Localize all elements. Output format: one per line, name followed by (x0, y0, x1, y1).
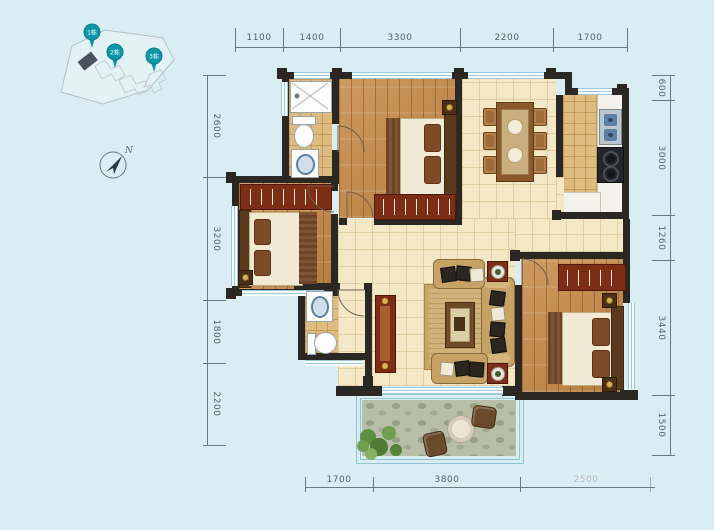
door-arc-master-bedroom (347, 192, 373, 218)
floor-plan-image: 1栋 2栋 3栋 N 1100 1400 3300 2200 1700 2600… (0, 0, 714, 530)
shower-drain-icon (295, 94, 300, 99)
balcony-plants (357, 426, 402, 460)
door-arc-bathroom-1 (338, 126, 364, 152)
shower-glass-lines (292, 83, 328, 109)
door-arcs (308, 126, 548, 316)
plan-overlay (0, 0, 714, 530)
door-arc-bedroom-3 (522, 259, 548, 285)
door-arc-bathroom-2 (338, 290, 364, 316)
door-arc-bedroom-2 (308, 186, 334, 212)
